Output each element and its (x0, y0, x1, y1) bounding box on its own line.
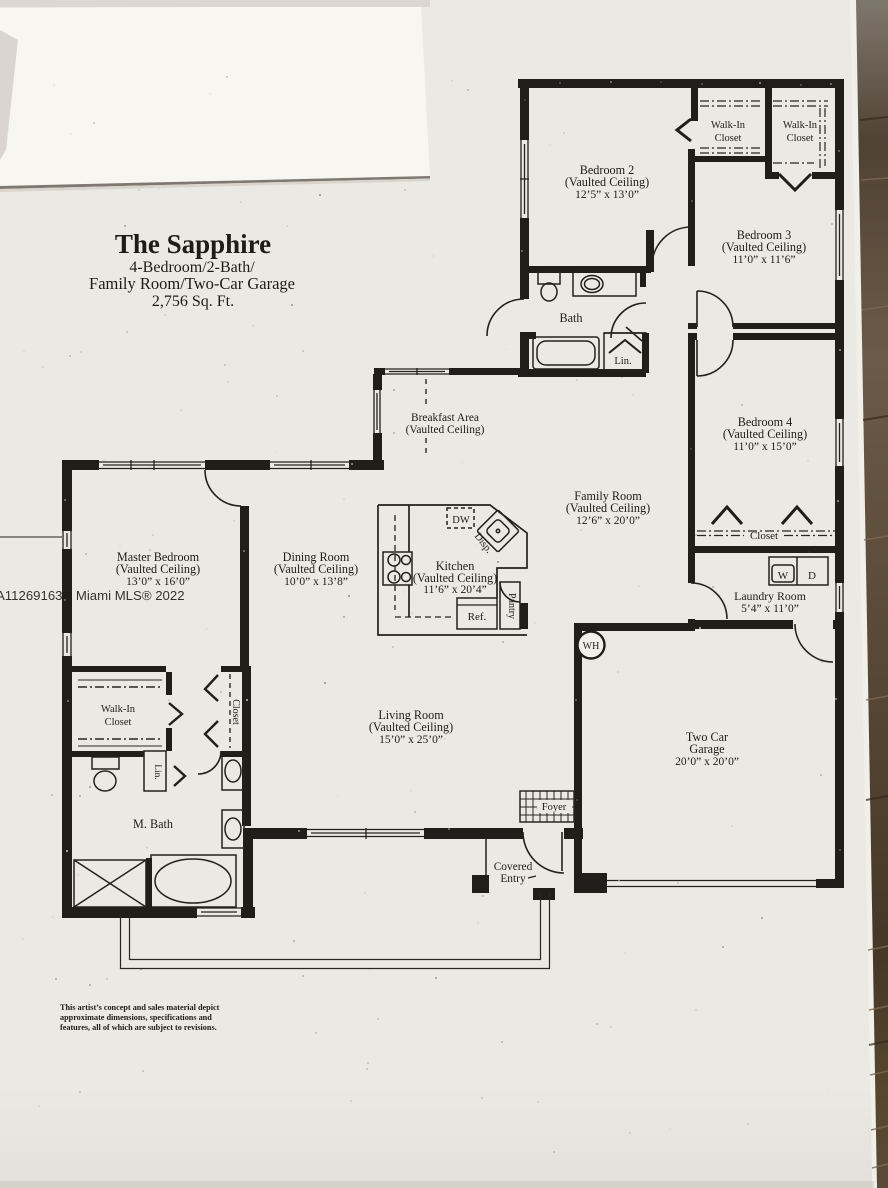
svg-text:Breakfast Area: Breakfast Area (411, 412, 479, 424)
svg-text:Closet: Closet (750, 530, 778, 542)
svg-text:Bath: Bath (559, 311, 582, 325)
svg-text:Family Room/Two-Car Garage: Family Room/Two-Car Garage (89, 274, 295, 293)
svg-text:D: D (808, 570, 816, 582)
svg-text:features, all of which are sub: features, all of which are subject to re… (60, 1023, 217, 1032)
svg-text:Closet: Closet (787, 133, 814, 144)
svg-text:11’0” x 15’0”: 11’0” x 15’0” (733, 441, 796, 453)
svg-text:A11269163© Miami MLS® 2022: A11269163© Miami MLS® 2022 (0, 588, 185, 603)
svg-text:Closet: Closet (105, 717, 132, 728)
svg-text:20’0” x 20’0”: 20’0” x 20’0” (675, 756, 739, 768)
svg-text:12’6” x 20’0”: 12’6” x 20’0” (576, 515, 640, 527)
svg-text:(Vaulted Ceiling): (Vaulted Ceiling) (406, 424, 485, 436)
svg-text:Entry: Entry (500, 873, 526, 885)
svg-text:Walk-In: Walk-In (711, 120, 746, 131)
svg-text:Ref.: Ref. (468, 611, 487, 623)
svg-text:(Vaulted Ceiling): (Vaulted Ceiling) (116, 562, 200, 576)
svg-text:Garage: Garage (689, 742, 724, 756)
svg-text:(Vaulted Ceiling): (Vaulted Ceiling) (565, 175, 649, 189)
svg-text:Laundry Room: Laundry Room (734, 589, 806, 603)
svg-text:This artist’s concept and sale: This artist’s concept and sales material… (60, 1003, 220, 1012)
svg-text:Closet: Closet (715, 133, 742, 144)
svg-text:DW: DW (452, 515, 470, 526)
svg-text:Covered: Covered (494, 861, 533, 873)
svg-text:The Sapphire: The Sapphire (115, 229, 271, 259)
svg-text:W: W (778, 570, 789, 582)
svg-text:Lin.: Lin. (152, 764, 162, 780)
svg-text:12’5” x 13’0”: 12’5” x 13’0” (575, 189, 639, 201)
svg-text:Foyer: Foyer (542, 802, 567, 813)
svg-text:Closet: Closet (230, 699, 241, 725)
svg-text:Walk-In: Walk-In (783, 120, 818, 131)
svg-text:(Vaulted Ceiling): (Vaulted Ceiling) (413, 571, 497, 585)
svg-text:(Vaulted Ceiling): (Vaulted Ceiling) (723, 427, 807, 441)
svg-text:M. Bath: M. Bath (133, 817, 173, 831)
svg-text:approximate dimensions, specif: approximate dimensions, specifications a… (60, 1013, 212, 1022)
svg-text:5’4” x 11’0”: 5’4” x 11’0” (741, 603, 799, 615)
svg-text:13’0” x 16’0”: 13’0” x 16’0” (126, 576, 190, 588)
svg-text:(Vaulted Ceiling): (Vaulted Ceiling) (722, 240, 806, 254)
svg-text:WH: WH (583, 641, 600, 652)
svg-text:15’0” x 25’0”: 15’0” x 25’0” (379, 734, 443, 746)
svg-text:10’0” x 13’8”: 10’0” x 13’8” (284, 576, 348, 588)
svg-text:Lin.: Lin. (614, 356, 631, 367)
svg-text:2,756 Sq. Ft.: 2,756 Sq. Ft. (152, 293, 234, 310)
svg-text:(Vaulted Ceiling): (Vaulted Ceiling) (274, 562, 358, 576)
svg-text:Walk-In: Walk-In (101, 704, 136, 715)
svg-text:11’6” x 20’4”: 11’6” x 20’4” (423, 584, 486, 596)
svg-text:(Vaulted Ceiling): (Vaulted Ceiling) (566, 501, 650, 515)
svg-text:Pantry: Pantry (506, 593, 517, 619)
svg-text:(Vaulted Ceiling): (Vaulted Ceiling) (369, 720, 453, 734)
svg-text:11’0” x 11’6”: 11’0” x 11’6” (732, 254, 795, 266)
